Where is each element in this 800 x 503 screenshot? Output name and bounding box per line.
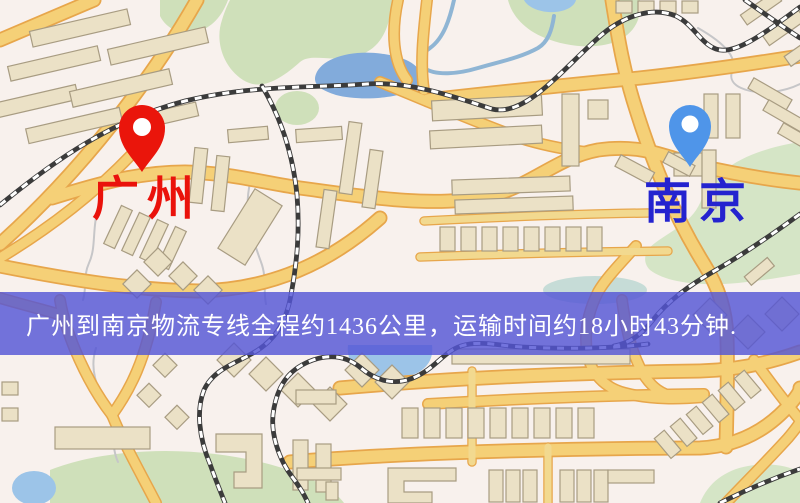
route-info-text: 广州到南京物流专线全程约1436公里，运输时间约18小时43分钟. (0, 306, 737, 341)
route-map-image: 广州 南京 广州到南京物流专线全程约1436公里，运输时间约18小时43分钟. (0, 0, 800, 503)
route-info-banner: 广州到南京物流专线全程约1436公里，运输时间约18小时43分钟. (0, 292, 800, 355)
origin-city-label: 广州 (92, 177, 202, 224)
map-canvas[interactable] (0, 0, 800, 503)
destination-city-label: 南京 (644, 180, 754, 227)
